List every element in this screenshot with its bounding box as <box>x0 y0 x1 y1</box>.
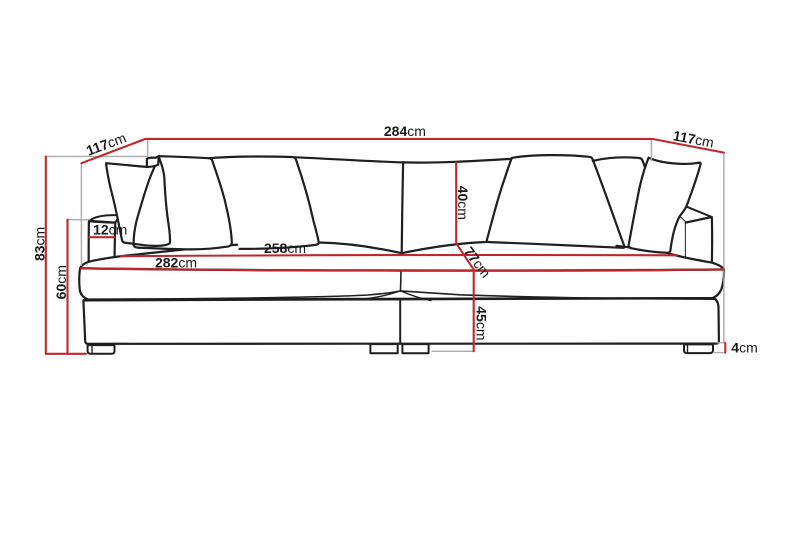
svg-text:12cm: 12cm <box>93 222 127 238</box>
svg-text:60cm: 60cm <box>53 265 69 299</box>
svg-text:40cm: 40cm <box>455 186 471 220</box>
svg-text:83cm: 83cm <box>31 227 47 261</box>
svg-text:258cm: 258cm <box>264 240 306 256</box>
svg-text:45cm: 45cm <box>474 306 490 340</box>
svg-text:282cm: 282cm <box>155 255 197 271</box>
svg-text:4cm: 4cm <box>731 339 757 355</box>
svg-text:284cm: 284cm <box>384 123 426 139</box>
